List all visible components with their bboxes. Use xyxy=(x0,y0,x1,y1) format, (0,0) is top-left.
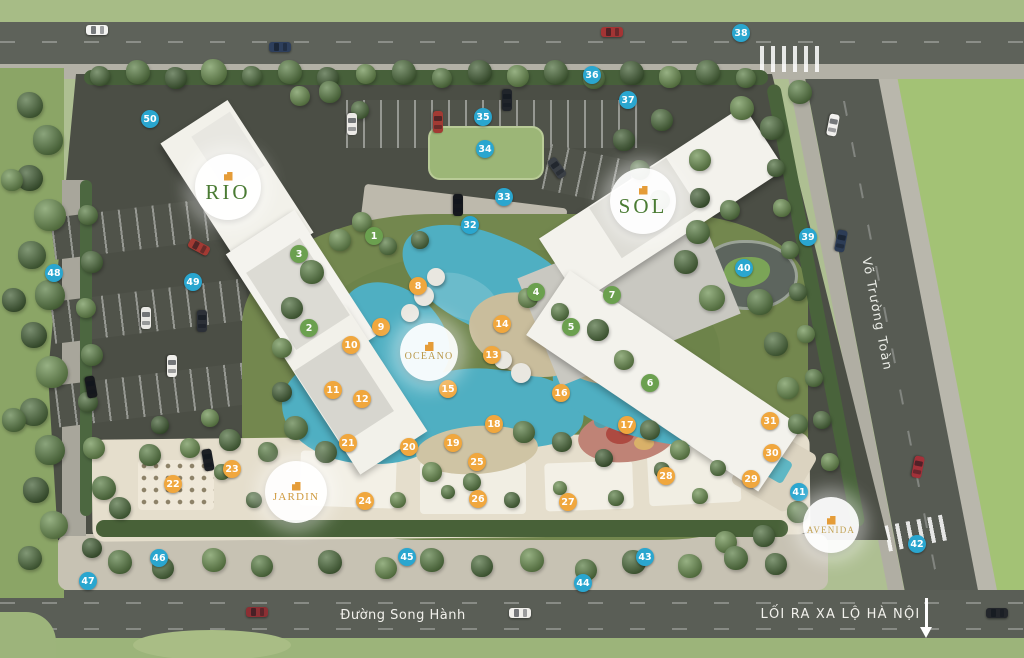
marker-blue-35: 35 xyxy=(474,108,492,126)
marker-blue-46: 46 xyxy=(150,549,168,567)
tree-icon xyxy=(36,356,68,388)
tree-icon xyxy=(613,129,635,151)
tree-icon xyxy=(375,557,397,579)
tree-icon xyxy=(507,65,529,87)
marker-orange-21: 21 xyxy=(339,434,357,452)
marker-blue-50: 50 xyxy=(141,110,159,128)
tree-icon xyxy=(246,492,262,508)
marker-orange-15: 15 xyxy=(439,380,457,398)
marker-green-1: 1 xyxy=(365,227,383,245)
tree-icon xyxy=(318,550,342,574)
marker-orange-17: 17 xyxy=(618,416,636,434)
tree-icon xyxy=(765,553,787,575)
marker-blue-45: 45 xyxy=(398,548,416,566)
marker-orange-25: 25 xyxy=(468,453,486,471)
car-icon xyxy=(502,89,512,111)
marker-orange-31: 31 xyxy=(761,412,779,430)
tree-icon xyxy=(165,67,187,89)
marker-blue-40: 40 xyxy=(735,259,753,277)
tree-icon xyxy=(422,462,442,482)
tree-icon xyxy=(471,555,493,577)
masteri-logo-icon xyxy=(639,186,648,195)
hedge-bottom xyxy=(96,520,788,537)
marker-blue-36: 36 xyxy=(583,66,601,84)
marker-blue-33: 33 xyxy=(495,188,513,206)
tree-icon xyxy=(392,60,416,84)
tree-icon xyxy=(821,453,839,471)
marker-green-2: 2 xyxy=(300,319,318,337)
tree-icon xyxy=(595,449,613,467)
grass-top xyxy=(0,0,1024,24)
tree-icon xyxy=(797,325,815,343)
masteri-logo-icon xyxy=(425,342,434,351)
marker-blue-43: 43 xyxy=(636,548,654,566)
tree-icon xyxy=(692,488,708,504)
marker-orange-18: 18 xyxy=(485,415,503,433)
tree-icon xyxy=(520,548,544,572)
zone-label-avenida: AVENIDA xyxy=(807,526,855,535)
tree-icon xyxy=(789,283,807,301)
tree-icon xyxy=(620,61,644,85)
zone-label-sol: SOL xyxy=(619,196,668,217)
tree-icon xyxy=(674,250,698,274)
tree-icon xyxy=(258,442,278,462)
tree-icon xyxy=(34,199,66,231)
marker-orange-27: 27 xyxy=(559,493,577,511)
tree-icon xyxy=(109,497,131,519)
tree-icon xyxy=(764,332,788,356)
tree-icon xyxy=(23,477,49,503)
tree-icon xyxy=(690,188,710,208)
marker-blue-37: 37 xyxy=(619,91,637,109)
car-icon xyxy=(269,42,291,52)
tree-icon xyxy=(40,511,68,539)
marker-blue-32: 32 xyxy=(461,216,479,234)
tree-icon xyxy=(441,485,455,499)
tree-icon xyxy=(17,92,43,118)
tree-icon xyxy=(781,241,799,259)
tree-icon xyxy=(724,546,748,570)
tree-icon xyxy=(76,298,96,318)
tree-icon xyxy=(2,288,26,312)
zone-circle-avenida: AVENIDA xyxy=(803,497,859,553)
marker-green-5: 5 xyxy=(562,318,580,336)
tree-icon xyxy=(720,200,740,220)
marker-orange-9: 9 xyxy=(372,318,390,336)
zone-circle-sol: SOL xyxy=(610,168,676,234)
tree-icon xyxy=(747,289,773,315)
zone-label-rio: RIO xyxy=(205,182,250,203)
marker-orange-23: 23 xyxy=(223,460,241,478)
tree-icon xyxy=(35,435,65,465)
marker-blue-41: 41 xyxy=(790,483,808,501)
tree-icon xyxy=(251,555,273,577)
car-icon xyxy=(167,355,177,377)
tree-icon xyxy=(81,251,103,273)
tree-icon xyxy=(678,554,702,578)
tree-icon xyxy=(201,409,219,427)
car-icon xyxy=(433,111,443,133)
tree-icon xyxy=(83,437,105,459)
tree-icon xyxy=(587,319,609,341)
tree-icon xyxy=(33,125,63,155)
tree-icon xyxy=(651,109,673,131)
lane-line-top-road xyxy=(0,41,1024,43)
tree-icon xyxy=(81,344,103,366)
car-icon xyxy=(453,194,463,216)
zone-circle-jardin: JARDIN xyxy=(265,461,327,523)
zone-label-oceano: OCEANO xyxy=(405,352,454,362)
zone-label-jardin: JARDIN xyxy=(273,492,319,503)
tree-icon xyxy=(767,159,785,177)
tree-icon xyxy=(21,322,47,348)
tree-icon xyxy=(356,64,376,84)
tree-icon xyxy=(813,411,831,429)
tree-icon xyxy=(696,60,720,84)
tree-icon xyxy=(281,297,303,319)
tree-icon xyxy=(805,369,823,387)
marker-orange-16: 16 xyxy=(552,384,570,402)
marker-blue-47: 47 xyxy=(79,572,97,590)
pool-dome-3 xyxy=(401,304,419,322)
zone-circle-rio: RIO xyxy=(195,154,261,220)
marker-blue-34: 34 xyxy=(476,140,494,158)
car-icon xyxy=(141,307,151,329)
marker-orange-28: 28 xyxy=(657,467,675,485)
tree-icon xyxy=(504,492,520,508)
marker-blue-48: 48 xyxy=(45,264,63,282)
tree-icon xyxy=(736,68,756,88)
tree-icon xyxy=(35,280,65,310)
car-icon xyxy=(86,25,108,35)
tree-icon xyxy=(659,66,681,88)
tree-icon xyxy=(788,80,812,104)
car-icon xyxy=(246,607,268,617)
tree-icon xyxy=(640,420,660,440)
marker-orange-22: 22 xyxy=(164,475,182,493)
tree-icon xyxy=(219,429,241,451)
tree-icon xyxy=(278,60,302,84)
marker-blue-42: 42 xyxy=(908,535,926,553)
marker-orange-13: 13 xyxy=(483,346,501,364)
marker-orange-20: 20 xyxy=(400,438,418,456)
road-top xyxy=(0,22,1024,64)
tree-icon xyxy=(513,421,535,443)
tree-icon xyxy=(242,66,262,86)
tree-icon xyxy=(201,59,227,85)
tree-icon xyxy=(1,169,23,191)
tree-icon xyxy=(432,68,452,88)
marker-green-7: 7 xyxy=(603,286,621,304)
grass-mound-bottom xyxy=(133,630,291,658)
tree-icon xyxy=(544,60,568,84)
pool-dome-5 xyxy=(511,363,531,383)
street-label-duong-song-hanh: Đường Song Hành xyxy=(318,608,488,623)
tree-icon xyxy=(329,229,351,251)
tree-icon xyxy=(753,525,775,547)
tree-icon xyxy=(390,492,406,508)
marker-blue-44: 44 xyxy=(574,574,592,592)
crosswalk-top-junction xyxy=(760,46,824,72)
marker-blue-39: 39 xyxy=(799,228,817,246)
tree-icon xyxy=(468,60,492,84)
tree-icon xyxy=(78,205,98,225)
tree-icon xyxy=(284,416,308,440)
marker-green-4: 4 xyxy=(527,283,545,301)
marker-orange-30: 30 xyxy=(763,444,781,462)
marker-green-3: 3 xyxy=(290,245,308,263)
tree-icon xyxy=(552,432,572,452)
masteri-logo-icon xyxy=(224,172,233,181)
tree-icon xyxy=(788,414,808,434)
marker-orange-10: 10 xyxy=(342,336,360,354)
tree-icon xyxy=(126,60,150,84)
street-label-exit-highway: LỐI RA XA LỘ HÀ NỘI xyxy=(738,607,943,622)
masteri-logo-icon xyxy=(827,516,836,525)
tree-icon xyxy=(18,546,42,570)
tree-icon xyxy=(614,350,634,370)
car-icon xyxy=(197,310,207,332)
marker-orange-29: 29 xyxy=(742,470,760,488)
tree-icon xyxy=(689,149,711,171)
masteri-logo-icon xyxy=(292,482,301,491)
marker-blue-38: 38 xyxy=(732,24,750,42)
lane-line-bottom-road-1 xyxy=(0,602,1024,604)
tree-icon xyxy=(699,285,725,311)
tree-icon xyxy=(90,66,110,86)
tree-icon xyxy=(82,538,102,558)
tree-icon xyxy=(202,548,226,572)
marker-orange-11: 11 xyxy=(324,381,342,399)
tree-icon xyxy=(315,441,337,463)
exit-arrow-icon xyxy=(920,598,933,640)
marker-orange-8: 8 xyxy=(409,277,427,295)
tree-icon xyxy=(710,460,726,476)
tree-icon xyxy=(108,550,132,574)
tree-icon xyxy=(92,476,116,500)
marker-green-6: 6 xyxy=(641,374,659,392)
tree-icon xyxy=(730,96,754,120)
tree-icon xyxy=(686,220,710,244)
tree-icon xyxy=(139,444,161,466)
tree-icon xyxy=(463,473,481,491)
tree-icon xyxy=(608,490,624,506)
tree-icon xyxy=(290,86,310,106)
marker-orange-12: 12 xyxy=(353,390,371,408)
marker-orange-19: 19 xyxy=(444,434,462,452)
tree-icon xyxy=(773,199,791,217)
tree-icon xyxy=(319,81,341,103)
zone-circle-oceano: OCEANO xyxy=(400,323,458,381)
tree-icon xyxy=(151,416,169,434)
car-icon xyxy=(986,608,1008,618)
tree-icon xyxy=(670,440,690,460)
tree-icon xyxy=(300,260,324,284)
marker-orange-26: 26 xyxy=(469,490,487,508)
car-icon xyxy=(347,113,357,135)
tree-icon xyxy=(777,377,799,399)
marker-orange-24: 24 xyxy=(356,492,374,510)
tree-icon xyxy=(272,338,292,358)
tree-icon xyxy=(760,116,784,140)
site-plan-canvas: Đường Song Hành LỐI RA XA LỘ HÀ NỘI Võ T… xyxy=(0,0,1024,658)
tree-icon xyxy=(420,548,444,572)
car-icon xyxy=(509,608,531,618)
tree-icon xyxy=(18,241,46,269)
tree-icon xyxy=(2,408,26,432)
marker-blue-49: 49 xyxy=(184,273,202,291)
tree-icon xyxy=(272,382,292,402)
lane-line-bottom-road-2 xyxy=(0,628,1024,630)
tree-icon xyxy=(180,438,200,458)
marker-orange-14: 14 xyxy=(493,315,511,333)
tree-icon xyxy=(411,231,429,249)
car-icon xyxy=(601,27,623,37)
pool-dome-1 xyxy=(427,268,445,286)
